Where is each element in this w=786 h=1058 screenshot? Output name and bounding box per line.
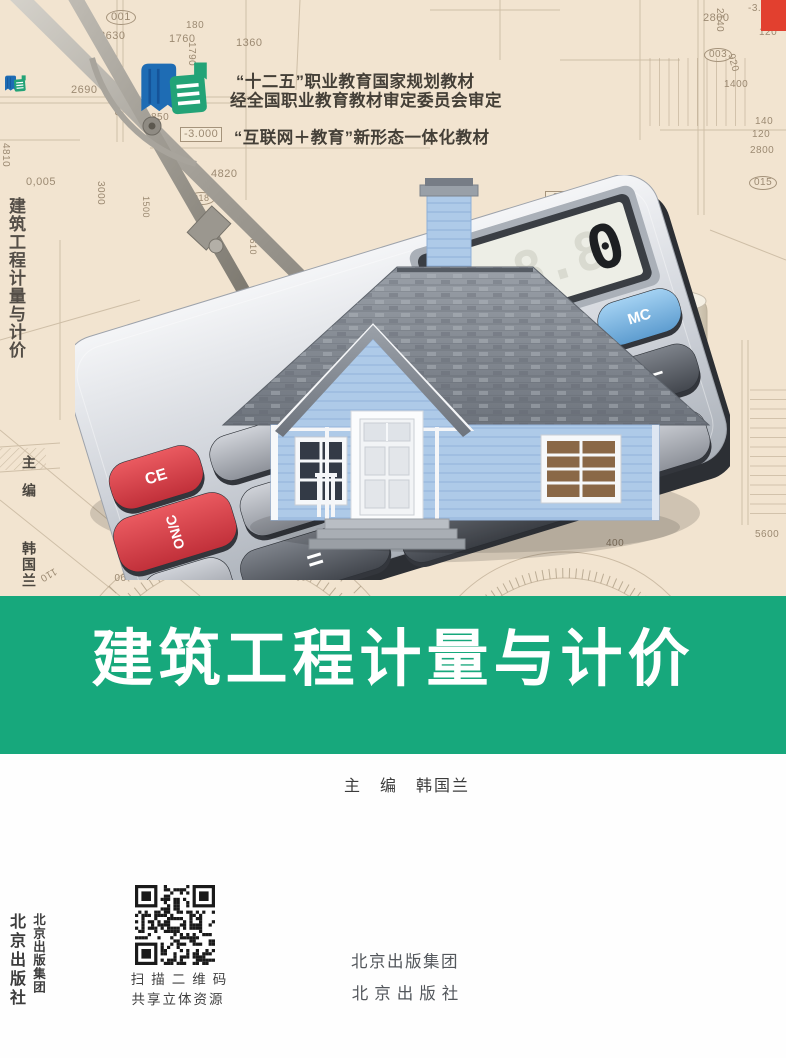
spine-publisher: 北京出版社 北京出版集团 (3, 913, 48, 1008)
spine-publisher-group: 北京出版集团 (29, 913, 48, 1008)
blueprint-annotation: 015 (749, 176, 777, 190)
spine-title: 建筑工程计量与计价 (6, 197, 24, 359)
publisher-logo-small (3, 70, 27, 98)
spine-editor: 主编 韩国兰 (19, 455, 39, 589)
accreditation-line-2: 经全国职业教育教材审定委员会审定 (230, 87, 502, 111)
spine-publisher-press: 北京出版社 (3, 913, 27, 1008)
spine-editor-role: 主编 (19, 455, 39, 511)
blueprint-annotation: 140 (755, 117, 773, 127)
qr-caption-scan: 扫描二维码 (117, 968, 247, 988)
blueprint-annotation: 920 (725, 53, 739, 73)
blueprint-annotation: 1400 (724, 80, 748, 90)
book-cover: 001263018017601360179026902670850-3.0005… (0, 0, 786, 1058)
publisher-imprint: 北京出版集团 北京出版社 (300, 948, 510, 1004)
spine-editor-name: 韩国兰 (19, 541, 39, 589)
lower-white-zone (0, 754, 786, 1058)
corner-mark (761, 0, 786, 31)
editor-credit: 主 编 韩国兰 (14, 772, 786, 796)
qr-caption-share: 共享立体资源 (113, 988, 243, 1008)
blueprint-annotation: 120 (752, 130, 770, 140)
publisher-logo (135, 56, 211, 124)
book-title: 建筑工程计量与计价 (0, 629, 786, 691)
house-calculator-photo: 8.8.8 0 CE÷MCON/C0·×−=+ (75, 175, 730, 580)
qr-code (135, 885, 215, 965)
blueprint-annotation: 2140 (714, 8, 724, 32)
blueprint-annotation: 5600 (755, 530, 779, 540)
series-line: “互联网＋教育”新形态一体化教材 (234, 124, 490, 148)
house-door (351, 411, 423, 519)
blueprint-annotation: 2800 (750, 146, 774, 156)
title-band: 建筑工程计量与计价 (0, 596, 786, 754)
house-window-right (541, 435, 621, 503)
publisher-press: 北京出版社 (303, 980, 513, 1004)
blueprint-annotation: 110 (38, 565, 58, 582)
publisher-group: 北京出版集团 (300, 948, 510, 972)
